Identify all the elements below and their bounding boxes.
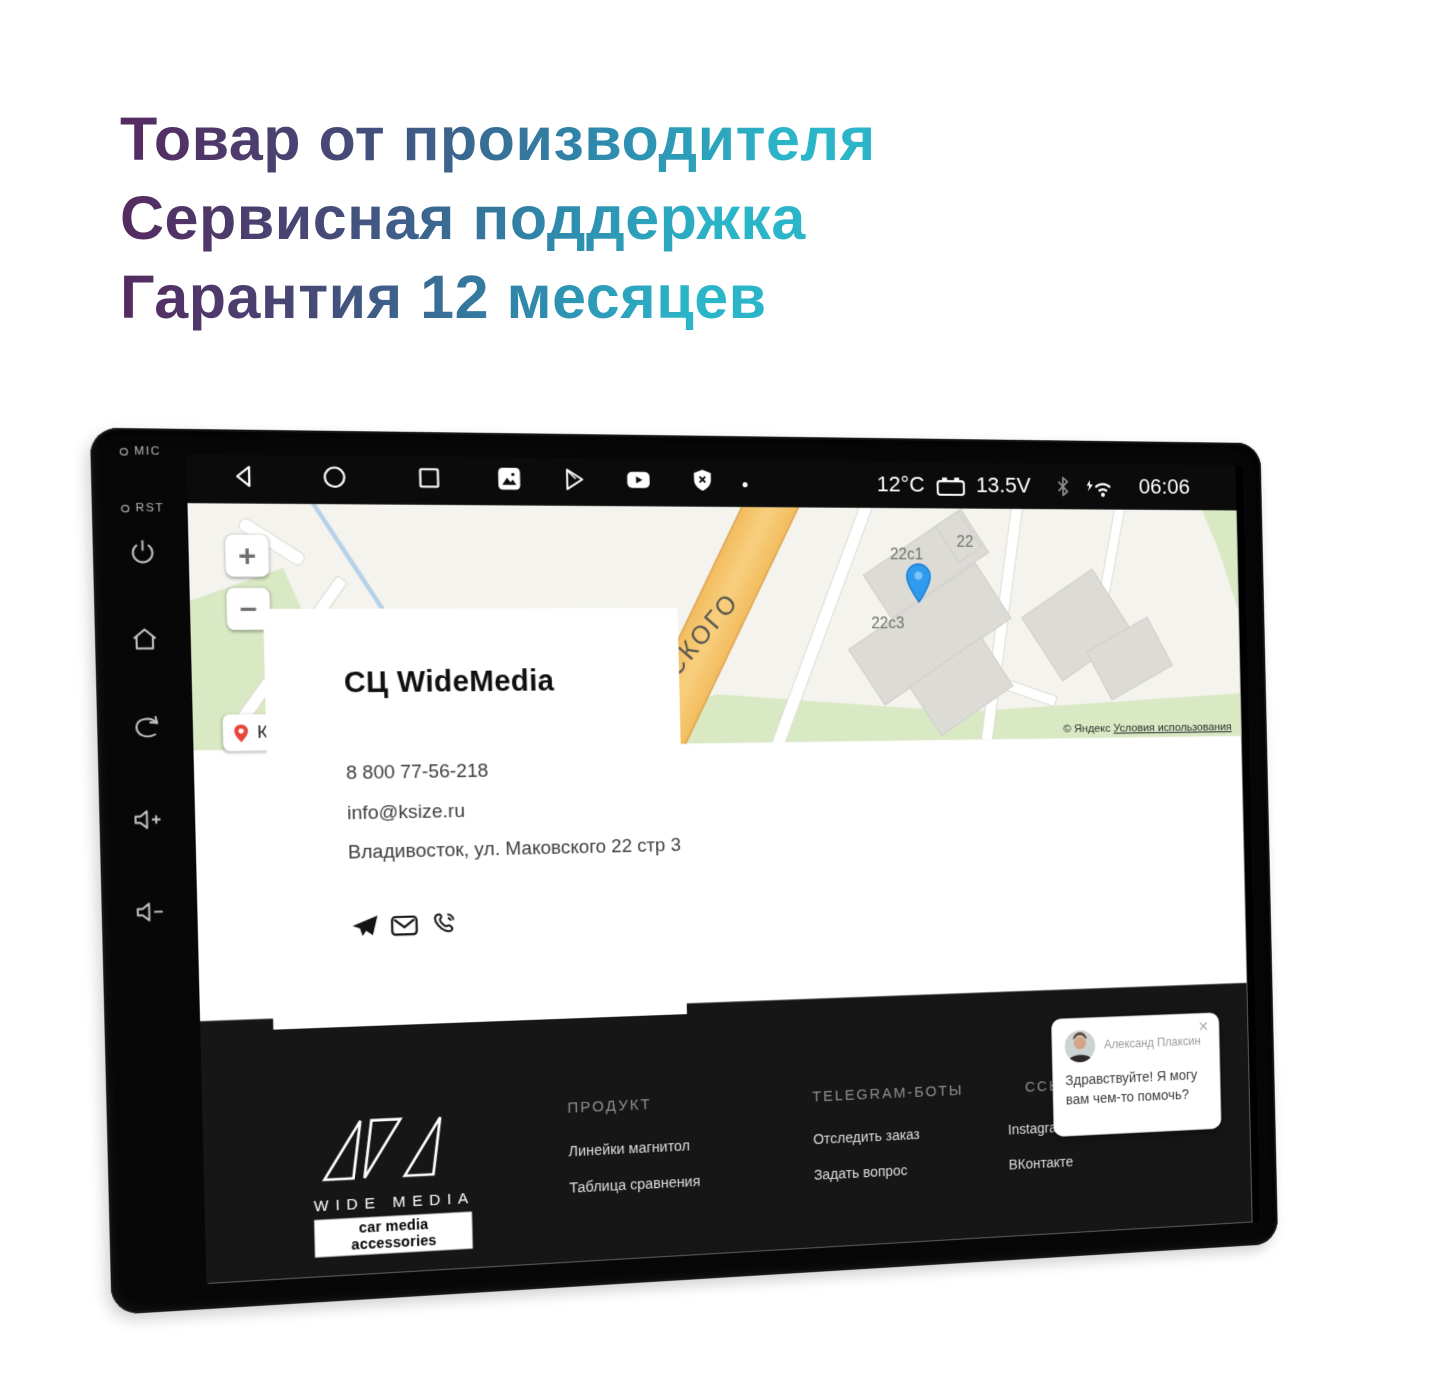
home-button[interactable] xyxy=(130,626,160,652)
back-arrow-icon xyxy=(132,714,163,741)
hero-line-3: Гарантия 12 месяцев xyxy=(120,258,767,337)
map-attribution: © Яндекс Условия использования xyxy=(1063,721,1232,735)
red-pin-icon xyxy=(232,723,251,743)
wide-media-logo-icon xyxy=(312,1109,471,1187)
phone-icon[interactable] xyxy=(430,909,462,944)
shield-x-icon[interactable] xyxy=(691,468,714,498)
footer-column-telegram-bots: TELEGRAM-БОТЫ Отследить заказ Задать воп… xyxy=(812,1081,964,1105)
close-icon[interactable]: ✕ xyxy=(1198,1019,1209,1036)
power-button[interactable] xyxy=(128,538,158,566)
status-voltage: 13.5V xyxy=(976,473,1031,498)
map-location-pin[interactable] xyxy=(904,563,932,610)
home-icon xyxy=(130,626,160,652)
wifi-icon[interactable] xyxy=(1084,475,1117,499)
building-label: 22 xyxy=(956,533,973,551)
footer-link-comparison[interactable]: Таблица сравнения xyxy=(569,1173,700,1196)
footer-column-product: ПРОДУКТ Линейки магнитол Таблица сравнен… xyxy=(567,1095,652,1116)
wide-media-logo: WIDE MEDIA car media accessories xyxy=(312,1109,473,1257)
footer-heading: TELEGRAM-БОТЫ xyxy=(812,1081,964,1105)
hero-line-1: Товар от производителя xyxy=(120,100,876,179)
chat-operator-name: Александ Плаксин xyxy=(1104,1035,1201,1051)
reset-label: RST xyxy=(135,502,164,515)
nav-recents-icon[interactable] xyxy=(416,465,443,497)
contact-address: Владивосток, ул. Маковского 22 стр 3 xyxy=(348,833,707,864)
logo-brand-text: WIDE MEDIA xyxy=(314,1189,472,1215)
footer-heading: ПРОДУКТ xyxy=(567,1095,652,1116)
site-footer: WIDE MEDIA car media accessories ПРОДУКТ… xyxy=(200,983,1252,1284)
building-label: 22с3 xyxy=(871,615,905,633)
avatar xyxy=(1064,1030,1095,1063)
mic-label: MIC xyxy=(134,445,161,458)
notification-dot-icon xyxy=(742,474,749,493)
volume-up-button[interactable] xyxy=(132,806,165,833)
reset-hole[interactable]: RST xyxy=(120,502,164,515)
status-bar: 12°C 13.5V 06:06 xyxy=(186,454,1236,510)
back-button[interactable] xyxy=(132,714,163,741)
gallery-app-icon[interactable] xyxy=(496,466,523,498)
device-screen: 12°C 13.5V 06:06 xyxy=(186,454,1259,1284)
footer-link-ask-question[interactable]: Задать вопрос xyxy=(814,1162,908,1183)
map-zoom-in-button[interactable]: + xyxy=(225,535,269,577)
youtube-app-icon[interactable] xyxy=(625,467,651,498)
contact-phone[interactable]: 8 800 77-56-218 xyxy=(346,757,682,785)
telegram-icon[interactable] xyxy=(349,912,380,946)
contact-email[interactable]: info@ksize.ru xyxy=(347,795,683,824)
play-store-app-icon[interactable] xyxy=(561,466,588,498)
nav-back-icon[interactable] xyxy=(230,463,258,495)
logo-tagline: car media accessories xyxy=(314,1212,473,1258)
mic-hole: MIC xyxy=(119,445,161,458)
battery-icon xyxy=(935,474,965,496)
volume-down-icon xyxy=(134,898,167,925)
webpage: ОВСКОГО 22с1 22 22с3 + xyxy=(187,503,1252,1284)
email-icon[interactable] xyxy=(390,911,421,945)
building-label: 22с1 xyxy=(890,546,923,564)
footer-link-vkontakte[interactable]: ВКонтакте xyxy=(1009,1153,1074,1172)
volume-down-button[interactable] xyxy=(134,898,167,925)
status-time: 06:06 xyxy=(1139,475,1190,500)
chat-widget[interactable]: ✕ Александ Плаксин Здравствуйте! Я могу … xyxy=(1051,1012,1221,1136)
contact-card: СЦ WideMedia 8 800 77-56-218 info@ksize.… xyxy=(263,608,687,1030)
footer-link-track-order[interactable]: Отследить заказ xyxy=(813,1127,920,1148)
bluetooth-icon[interactable] xyxy=(1053,474,1073,499)
chat-message: Здравствуйте! Я могу вам чем-то помочь? xyxy=(1065,1066,1209,1109)
head-unit-device: MIC RST xyxy=(90,428,1278,1315)
hero-line-2: Сервисная поддержка xyxy=(120,179,806,258)
power-icon xyxy=(128,538,158,566)
map-terms-link[interactable]: Условия использования xyxy=(1113,721,1231,735)
status-temperature: 12°C xyxy=(877,472,925,498)
volume-up-icon xyxy=(132,806,165,833)
footer-link-lineups[interactable]: Линейки магнитол xyxy=(568,1138,690,1160)
hero-headline: Товар от производителя Сервисная поддерж… xyxy=(120,100,876,337)
map-green-area xyxy=(1177,510,1239,612)
map-copyright: © Яндекс xyxy=(1063,722,1111,735)
nav-home-icon[interactable] xyxy=(321,464,349,496)
service-center-title: СЦ WideMedia xyxy=(344,664,680,700)
